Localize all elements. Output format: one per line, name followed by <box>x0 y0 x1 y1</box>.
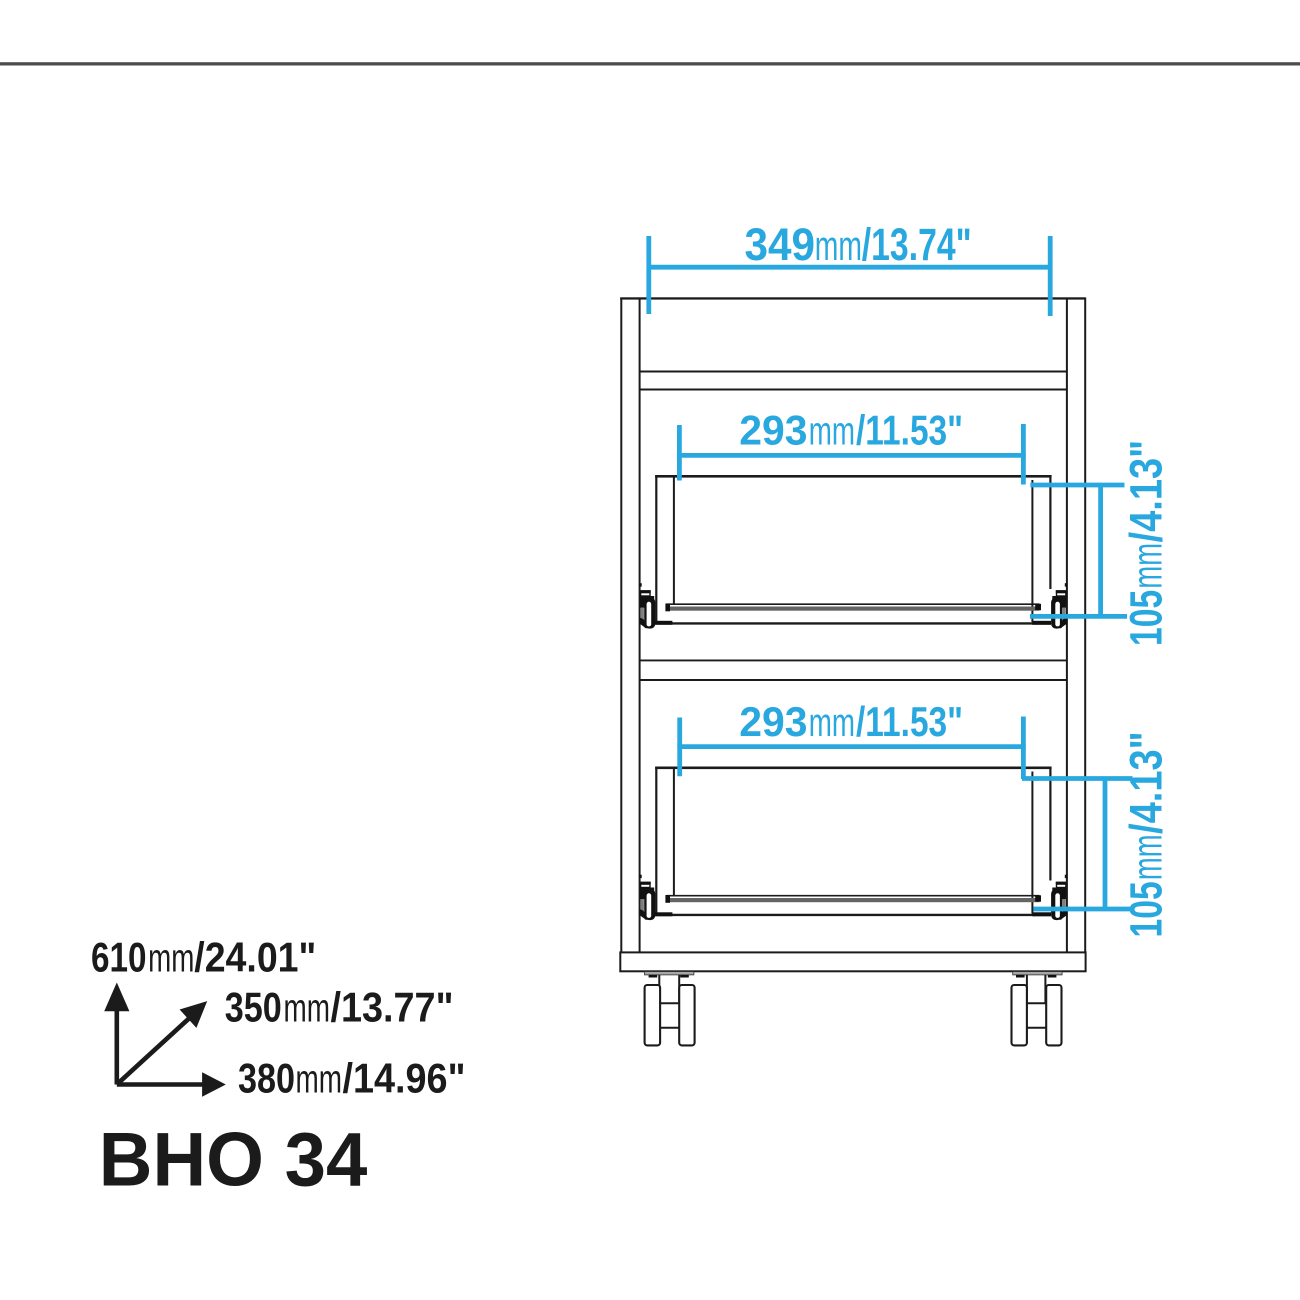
svg-text:BHO 34: BHO 34 <box>99 1118 368 1203</box>
svg-text:mm: mm <box>1124 543 1171 589</box>
svg-text:/4.13": /4.13" <box>1121 440 1172 543</box>
svg-text:mm: mm <box>809 701 855 745</box>
svg-text:/4.13": /4.13" <box>1121 731 1172 834</box>
svg-text:mm: mm <box>296 1058 343 1102</box>
svg-text:/11.53": /11.53" <box>856 698 963 745</box>
svg-text:mm: mm <box>815 222 862 269</box>
svg-text:/11.53": /11.53" <box>856 406 963 453</box>
svg-text:/24.01": /24.01" <box>194 934 316 981</box>
svg-text:/13.77": /13.77" <box>331 983 454 1030</box>
svg-text:mm: mm <box>1124 834 1171 880</box>
svg-text:105: 105 <box>1121 590 1172 646</box>
svg-text:293: 293 <box>739 698 807 745</box>
svg-text:610: 610 <box>91 934 147 981</box>
svg-text:380: 380 <box>238 1055 295 1102</box>
svg-text:105: 105 <box>1121 881 1172 937</box>
svg-text:349: 349 <box>745 219 816 270</box>
svg-text:/14.96": /14.96" <box>343 1055 466 1102</box>
svg-text:mm: mm <box>148 937 194 981</box>
svg-text:mm: mm <box>809 409 855 453</box>
svg-text:/13.74": /13.74" <box>862 219 972 270</box>
svg-text:mm: mm <box>284 986 331 1030</box>
svg-text:350: 350 <box>225 983 282 1030</box>
svg-text:293: 293 <box>739 406 807 453</box>
